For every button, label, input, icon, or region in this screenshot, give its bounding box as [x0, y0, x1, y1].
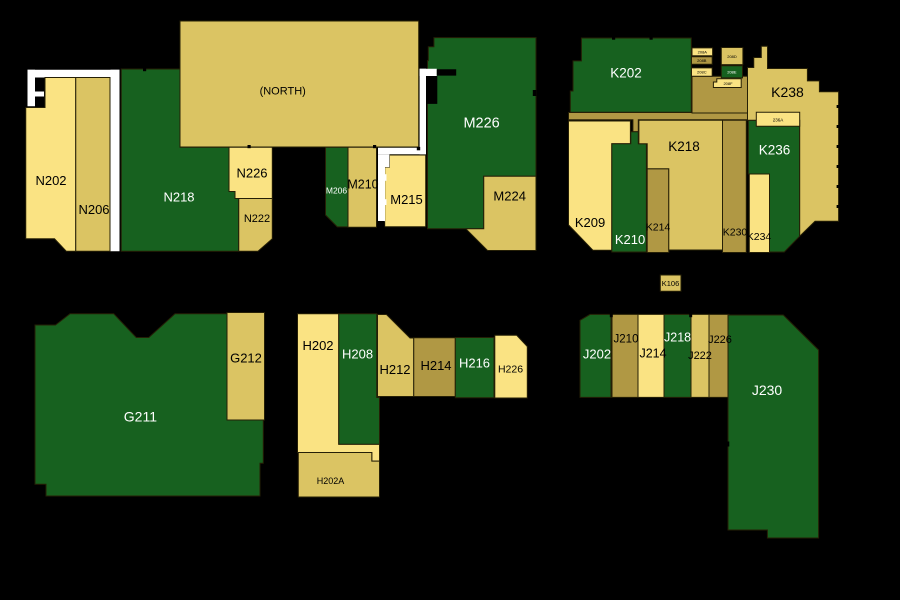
svg-text:208C: 208C: [697, 70, 707, 75]
svg-text:J210: J210: [614, 334, 639, 346]
svg-text:N206: N206: [78, 202, 109, 217]
svg-text:M215: M215: [390, 192, 423, 207]
svg-text:208E: 208E: [727, 70, 737, 75]
svg-text:K210: K210: [615, 232, 645, 247]
svg-text:G212: G212: [230, 350, 262, 365]
svg-text:J202: J202: [583, 347, 611, 362]
svg-text:208F: 208F: [723, 81, 733, 86]
svg-text:H226: H226: [498, 363, 523, 375]
svg-text:M224: M224: [493, 189, 526, 204]
svg-text:H202: H202: [302, 338, 333, 353]
svg-text:K234: K234: [747, 231, 772, 243]
svg-text:H208: H208: [342, 346, 373, 361]
svg-text:J218: J218: [664, 331, 691, 345]
svg-text:K230: K230: [723, 227, 748, 239]
svg-text:G211: G211: [124, 409, 157, 425]
svg-text:H212: H212: [379, 362, 410, 377]
svg-text:208B: 208B: [697, 58, 707, 63]
svg-text:M210: M210: [347, 178, 378, 192]
svg-text:M206: M206: [326, 186, 348, 196]
svg-text:K214: K214: [646, 222, 671, 234]
svg-text:H202A: H202A: [317, 476, 345, 486]
svg-text:M226: M226: [463, 116, 499, 132]
svg-text:K209: K209: [575, 215, 605, 230]
svg-text:J226: J226: [708, 334, 732, 346]
svg-text:K106: K106: [662, 279, 680, 288]
svg-text:K218: K218: [668, 139, 700, 154]
svg-text:208A: 208A: [698, 50, 708, 55]
svg-text:J214: J214: [639, 347, 666, 361]
svg-text:N226: N226: [236, 166, 267, 181]
svg-text:K236: K236: [759, 143, 791, 158]
svg-text:J222: J222: [688, 350, 712, 362]
svg-text:K202: K202: [610, 66, 642, 81]
svg-text:(NORTH): (NORTH): [260, 86, 306, 98]
svg-text:N202: N202: [35, 173, 66, 188]
svg-text:208D: 208D: [727, 54, 737, 59]
svg-text:J230: J230: [752, 382, 783, 398]
svg-text:N222: N222: [244, 213, 270, 225]
svg-text:K238: K238: [771, 84, 804, 100]
svg-text:N218: N218: [163, 190, 194, 205]
svg-text:H214: H214: [420, 358, 451, 373]
svg-text:236A: 236A: [773, 118, 784, 123]
svg-text:H216: H216: [459, 355, 490, 370]
